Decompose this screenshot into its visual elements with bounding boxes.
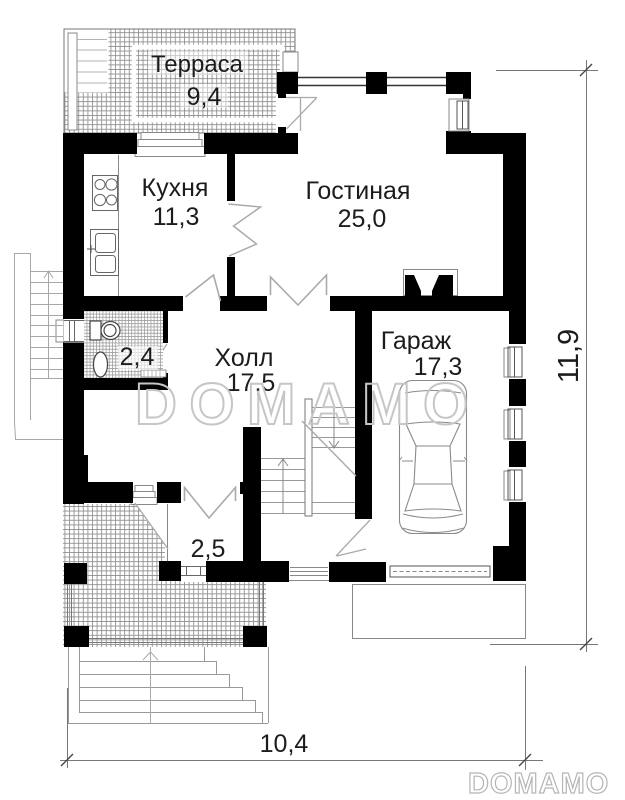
svg-text:11,3: 11,3 bbox=[153, 203, 200, 231]
svg-text:Кухня: Кухня bbox=[142, 174, 209, 202]
svg-text:Гостиная: Гостиная bbox=[306, 177, 411, 205]
svg-text:Гараж: Гараж bbox=[381, 327, 452, 355]
svg-text:25,0: 25,0 bbox=[338, 205, 387, 233]
svg-text:2,5: 2,5 bbox=[191, 535, 226, 563]
svg-text:10,4: 10,4 bbox=[260, 730, 309, 758]
svg-text:DOMAMO: DOMAMO bbox=[468, 768, 609, 800]
svg-text:11,9: 11,9 bbox=[553, 329, 585, 383]
svg-text:Холл: Холл bbox=[215, 344, 274, 372]
svg-text:9,4: 9,4 bbox=[187, 83, 222, 111]
svg-text:2,4: 2,4 bbox=[120, 343, 155, 371]
svg-text:Терраса: Терраса bbox=[151, 51, 244, 78]
svg-text:DOMAMO: DOMAMO bbox=[135, 372, 481, 437]
